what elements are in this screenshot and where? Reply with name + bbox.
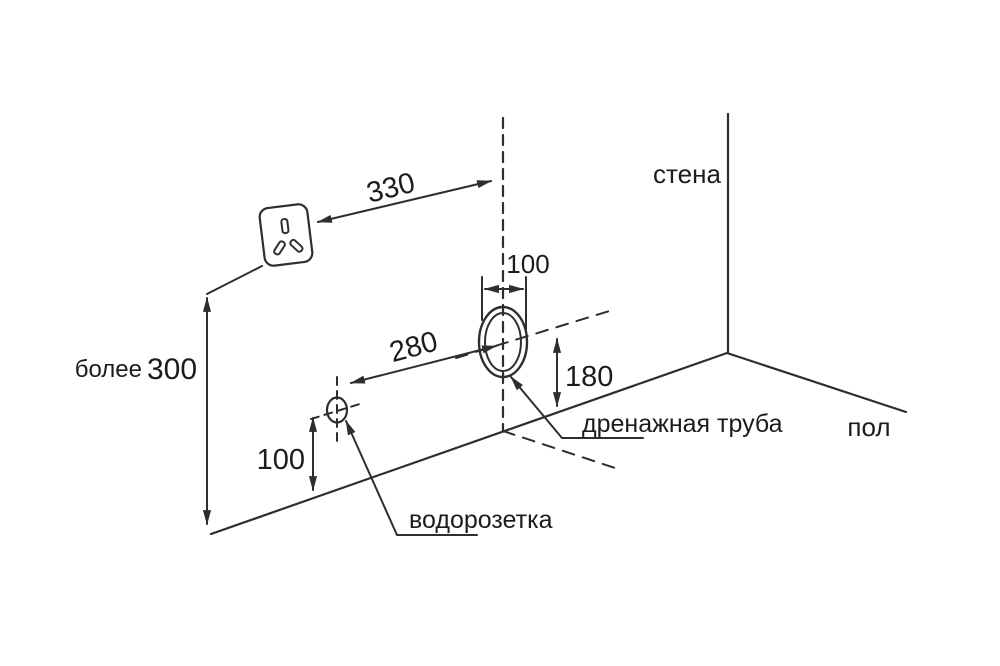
- dim-180-value: 180: [565, 361, 613, 393]
- socket-slot-right: [289, 239, 303, 253]
- floor-edge-right-line: [727, 353, 906, 412]
- dim-330-value: 330: [363, 167, 418, 210]
- socket-slot-left: [273, 240, 286, 255]
- dim-clearance-prefix: более: [75, 356, 142, 383]
- diagram-svg: 330 100 280 180 100 более 300 дренажная …: [0, 0, 1000, 666]
- floor-label: пол: [847, 412, 890, 442]
- water-socket-label: водорозетка: [409, 506, 553, 534]
- socket-extension-line: [207, 266, 262, 294]
- drain-pipe-label: дренажная труба: [582, 410, 783, 438]
- dim-100-top-value: 100: [506, 249, 549, 279]
- installation-diagram: 330 100 280 180 100 более 300 дренажная …: [0, 0, 1000, 666]
- wall-label: стена: [653, 159, 721, 189]
- dim-clearance-value: 300: [147, 353, 197, 386]
- power-socket-plate: [259, 203, 314, 266]
- socket-slot-top: [281, 219, 289, 234]
- power-socket-icon: [259, 203, 314, 266]
- dim-100-low-value: 100: [257, 444, 305, 476]
